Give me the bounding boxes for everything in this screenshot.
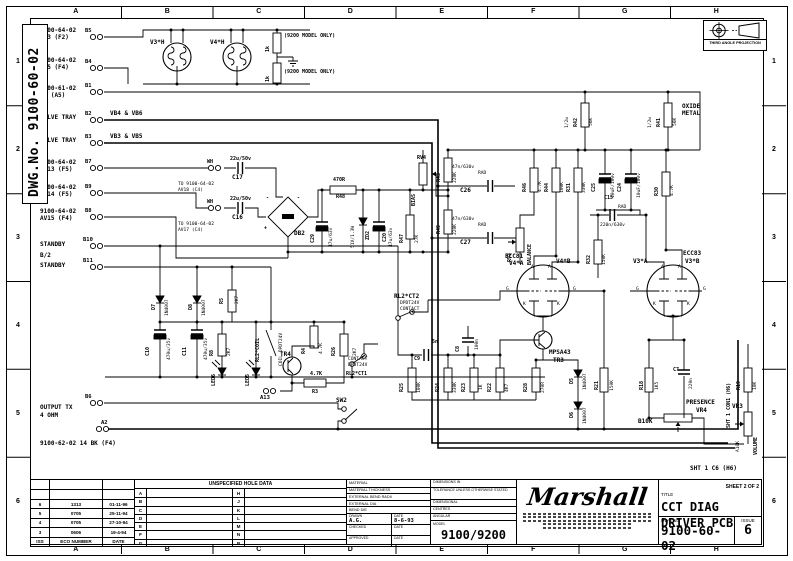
hole-blank	[245, 531, 346, 538]
hole-row: AH	[135, 489, 346, 497]
eco-row: 3060619-4-94	[31, 527, 134, 536]
grid-number: 4	[763, 282, 785, 370]
dims-row: DIMENSIONAL	[431, 499, 516, 506]
eco-row: 6131301-11-96	[31, 499, 134, 508]
model-cell: MODEL 9100/9200	[431, 520, 516, 544]
eco-cell	[31, 480, 49, 489]
title-line2: DRIVER PCB	[661, 516, 759, 532]
date-label: DATE	[394, 525, 430, 529]
dims-row: CENTRES	[431, 506, 516, 513]
marshall-logo: Marshall	[515, 482, 660, 511]
grid-letter: D	[305, 545, 397, 554]
material-block: MATERIALMATERIAL THICKNESSEXTERNAL BEND …	[346, 479, 431, 545]
approved-label: APPROVED	[349, 536, 391, 540]
grid-letter: D	[305, 5, 397, 17]
grid-number: 4	[7, 282, 29, 370]
model-label: MODEL	[433, 522, 514, 526]
eco-row: 5070525-11-94	[31, 508, 134, 517]
hole-letter: F	[135, 531, 147, 538]
grid-number: 3	[763, 194, 785, 282]
material-row: BEND DIE	[347, 506, 430, 513]
eco-cell: 25-11-94	[102, 509, 134, 517]
eco-cell: 0705	[49, 519, 102, 527]
drawn-date: 8-6-93	[394, 518, 430, 524]
hole-letter: A	[135, 489, 147, 497]
hole-letter: L	[233, 515, 245, 522]
hole-row: DL	[135, 514, 346, 522]
eco-cell: 27-10-94	[102, 519, 134, 527]
hole-table: UNSPECIFIED HOLE DATA AHBJCKDLEMFNGP	[134, 479, 347, 545]
hole-letter: N	[233, 531, 245, 538]
grid-number: 6	[763, 457, 785, 545]
title-block: TITLE SHEET 2 OF 2 CCT DIAG DRIVER PCB D…	[658, 479, 762, 545]
hole-letter: B	[135, 498, 147, 505]
hole-blank	[245, 523, 346, 530]
title-line1: CCT DIAG	[661, 500, 759, 516]
dwg-number-box: DWG.No. 9100-60-02	[22, 24, 48, 204]
hole-blank	[245, 515, 346, 522]
eco-cell: 01-11-96	[102, 500, 134, 508]
grid-number: 3	[7, 194, 29, 282]
hole-table-title: UNSPECIFIED HOLE DATA	[135, 480, 346, 489]
eco-table: 6131301-11-965070525-11-944070527-10-943…	[30, 479, 135, 545]
hole-row: FN	[135, 530, 346, 538]
drawn-row: DRAWNA.G. DATE8-6-93	[347, 513, 430, 524]
hole-letter: H	[233, 489, 245, 497]
material-row: EXTERNAL BEND RADII	[347, 493, 430, 500]
grid-letter: B	[122, 5, 214, 17]
eco-cell: 5	[31, 509, 49, 517]
eco-cell	[102, 480, 134, 489]
grid-letter: F	[488, 5, 580, 17]
grid-letter: E	[396, 545, 488, 554]
eco-cell: 4	[31, 519, 49, 527]
grid-letter: A	[30, 5, 122, 17]
projection-box: THIRD ANGLE PROJECTION	[703, 20, 767, 51]
grid-letter: C	[213, 545, 305, 554]
projection-label: THIRD ANGLE PROJECTION	[704, 39, 766, 45]
projection-symbol	[704, 21, 766, 39]
hole-blank	[245, 489, 346, 497]
hole-row: CK	[135, 506, 346, 514]
fine-print-line	[523, 513, 652, 515]
eco-cell: 0705	[49, 509, 102, 517]
hole-blank	[147, 489, 233, 497]
grid-letter: A	[30, 545, 122, 554]
fine-print-line	[543, 523, 632, 525]
grid-letter: E	[396, 5, 488, 17]
title-label: TITLE	[661, 492, 673, 497]
hole-blank	[147, 498, 233, 505]
grid-number: 5	[763, 369, 785, 457]
dims-row: ANGULAR	[431, 513, 516, 520]
grid-number: 2	[763, 106, 785, 194]
grid-letter: G	[579, 5, 671, 17]
checked-label: CHECKED	[349, 525, 391, 529]
grid-letter: C	[213, 5, 305, 17]
hole-row: EM	[135, 522, 346, 530]
hole-letter: C	[135, 507, 147, 514]
date-label: DATE	[394, 536, 430, 540]
hole-blank	[147, 523, 233, 530]
eco-row	[31, 489, 134, 498]
eco-cell: 0606	[49, 528, 102, 536]
fine-print-line	[523, 520, 652, 522]
checked-row: CHECKED DATE	[347, 524, 430, 535]
grid-letter: F	[488, 545, 580, 554]
hole-letter: K	[233, 507, 245, 514]
hole-letter: M	[233, 523, 245, 530]
grid-letter: G	[579, 545, 671, 554]
drawing-sheet: 9100-64-02AV3 (F2)B59100-64-02AV5 (F4)B4…	[0, 0, 793, 561]
grid-number: 1	[763, 18, 785, 106]
grid-letter: H	[671, 545, 763, 554]
fine-print-line	[543, 527, 632, 529]
frame-ticks	[0, 0, 793, 561]
eco-cell	[102, 490, 134, 498]
grid-number: 5	[7, 369, 29, 457]
eco-cell	[49, 480, 102, 489]
dims-row: TOLERANCE UNLESS OTHERWISE STATED	[431, 487, 516, 499]
eco-cell: 1313	[49, 500, 102, 508]
eco-row	[31, 480, 134, 489]
drawn-value: A.G.	[349, 518, 391, 524]
grid-letter: B	[122, 545, 214, 554]
eco-cell	[49, 490, 102, 498]
material-rows: MATERIALMATERIAL THICKNESSEXTERNAL BEND …	[347, 480, 430, 513]
material-row: MATERIAL THICKNESS	[347, 487, 430, 494]
dims-block: DIMENSIONS INTOLERANCE UNLESS OTHERWISE …	[430, 479, 517, 545]
hole-blank	[147, 531, 233, 538]
hole-letter: J	[233, 498, 245, 505]
dims-rows: DIMENSIONS INTOLERANCE UNLESS OTHERWISE …	[431, 480, 516, 520]
model-value: 9100/9200	[433, 528, 514, 542]
eco-cell: 19-4-94	[102, 528, 134, 536]
hole-letter: D	[135, 515, 147, 522]
eco-cell: 3	[31, 528, 49, 536]
dwg-number-vertical: DWG.No. 9100-60-02	[27, 47, 42, 197]
hole-blank	[245, 507, 346, 514]
material-row: EXTERNAL DIA	[347, 500, 430, 507]
hole-rows: AHBJCKDLEMFNGP	[135, 489, 346, 547]
sheet-number: SHEET 2 OF 2	[726, 484, 759, 490]
hole-blank	[245, 498, 346, 505]
hole-blank	[147, 507, 233, 514]
logo-block: Marshall	[516, 479, 659, 545]
grid-letter: H	[671, 5, 763, 17]
material-row: MATERIAL	[347, 480, 430, 487]
fine-print-line	[523, 516, 652, 518]
title-area: TITLE SHEET 2 OF 2 CCT DIAG DRIVER PCB	[659, 480, 761, 517]
hole-blank	[147, 515, 233, 522]
hole-letter: E	[135, 523, 147, 530]
eco-row: 4070527-10-94	[31, 518, 134, 527]
eco-cell: 6	[31, 500, 49, 508]
eco-cell	[31, 490, 49, 498]
grid-number: 6	[7, 457, 29, 545]
dims-row: DIMENSIONS IN	[431, 480, 516, 487]
hole-row: BJ	[135, 497, 346, 505]
